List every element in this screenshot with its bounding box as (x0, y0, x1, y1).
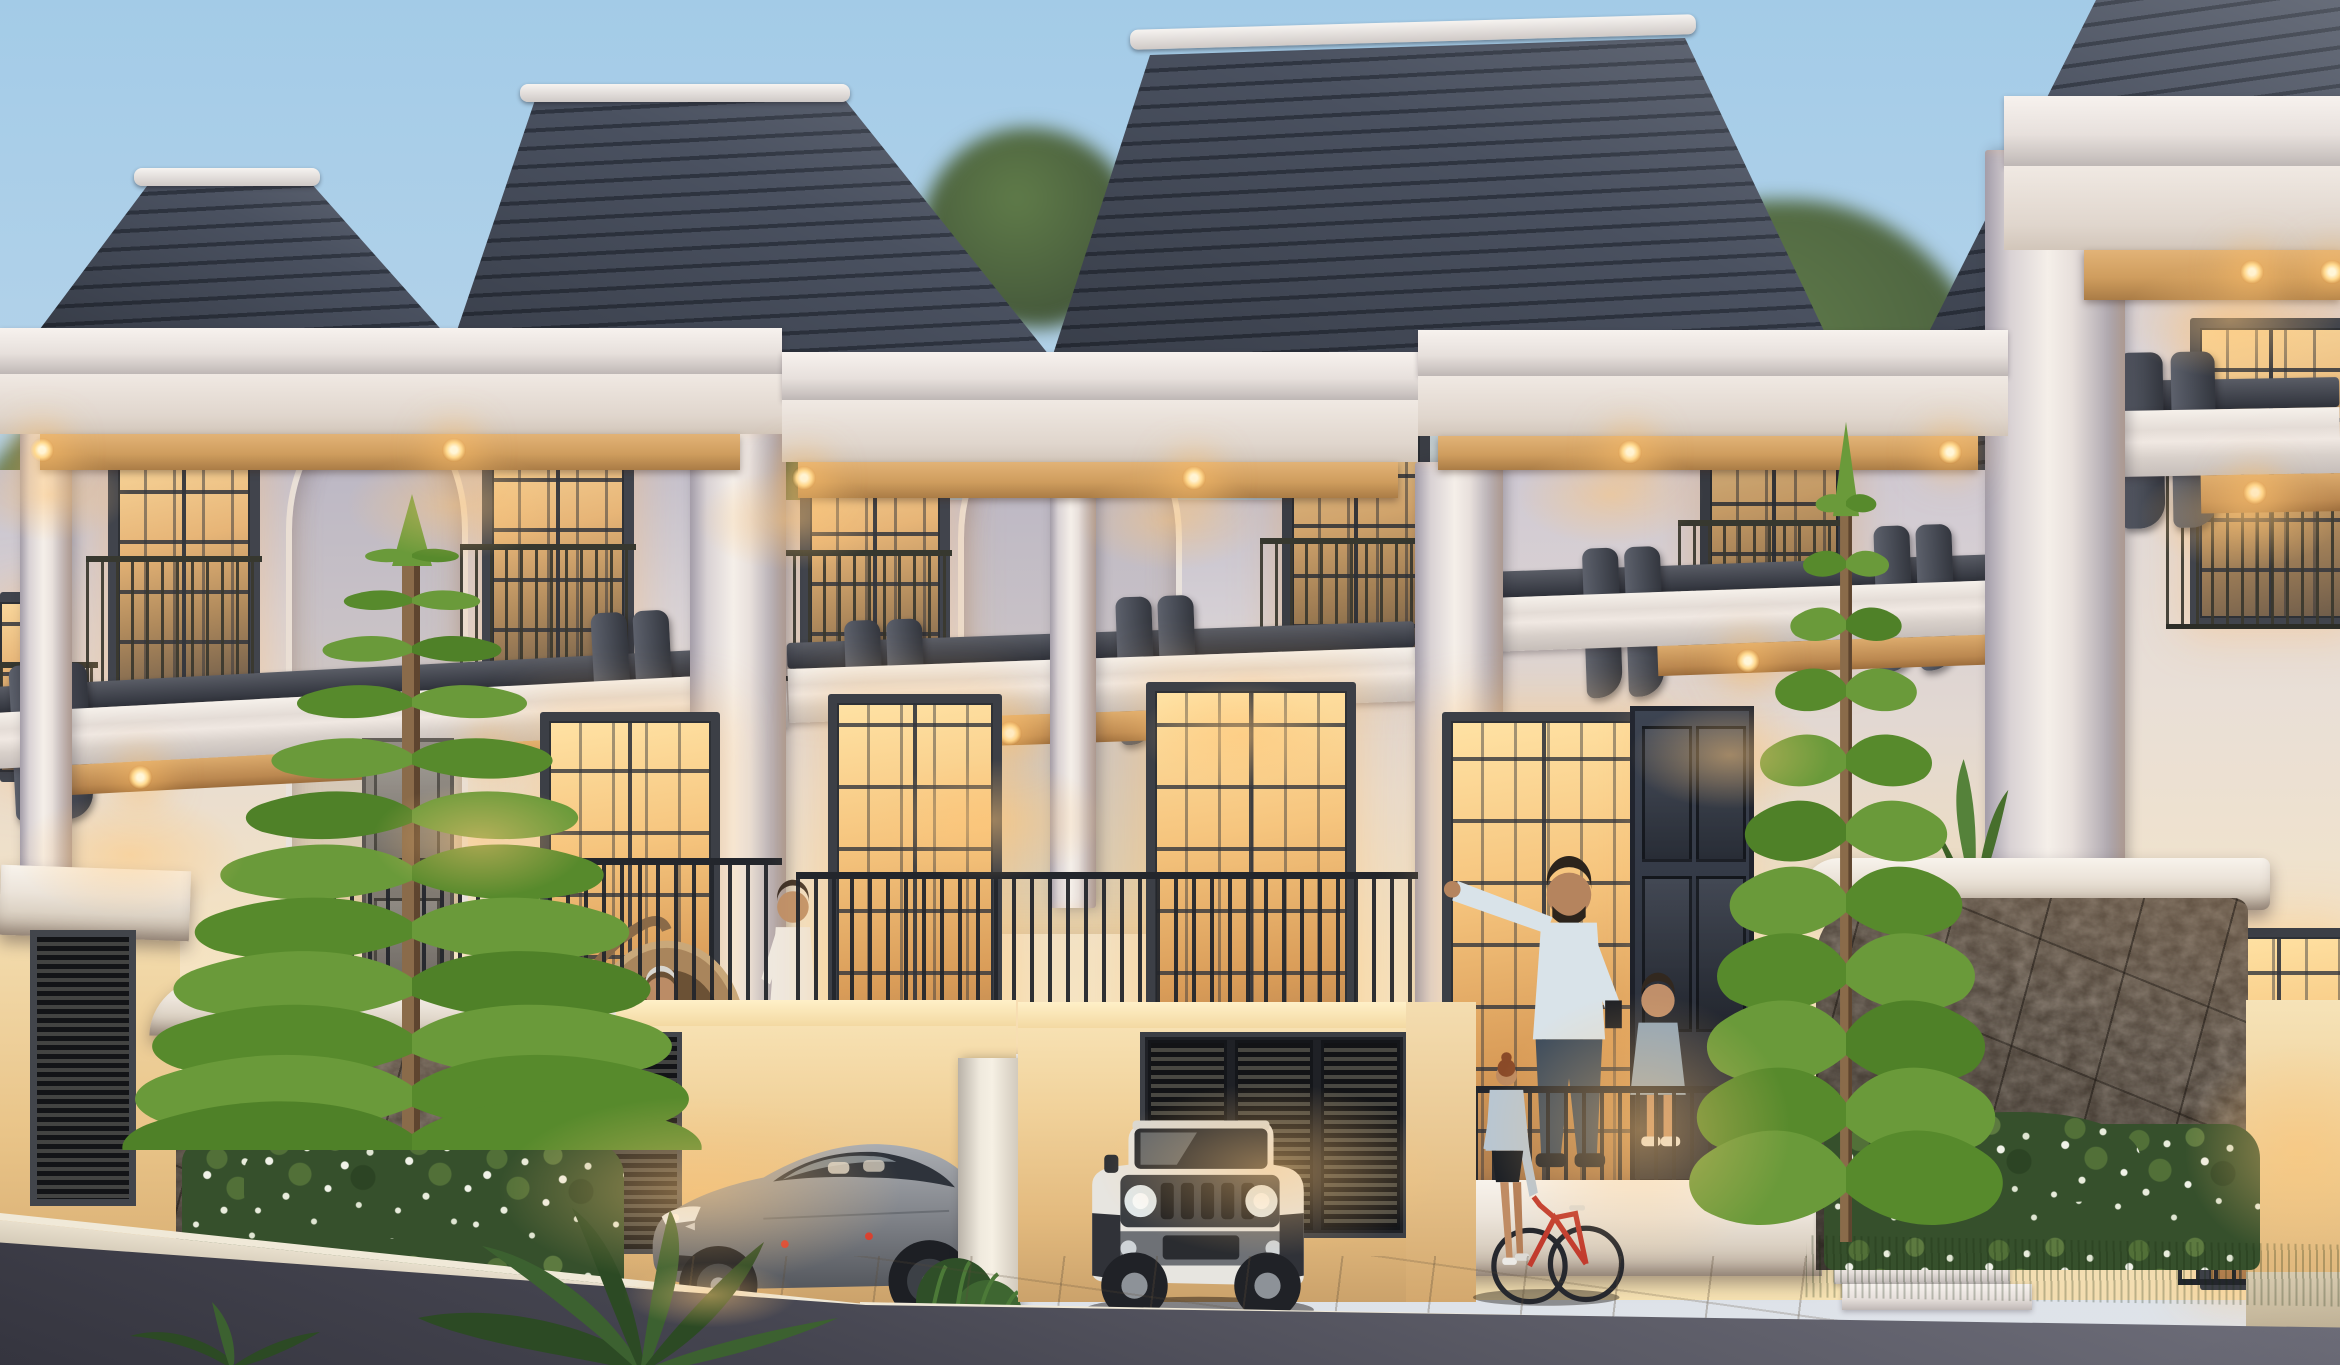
vignette (0, 0, 2340, 1365)
townhouse-dusk-render (0, 0, 2340, 1365)
